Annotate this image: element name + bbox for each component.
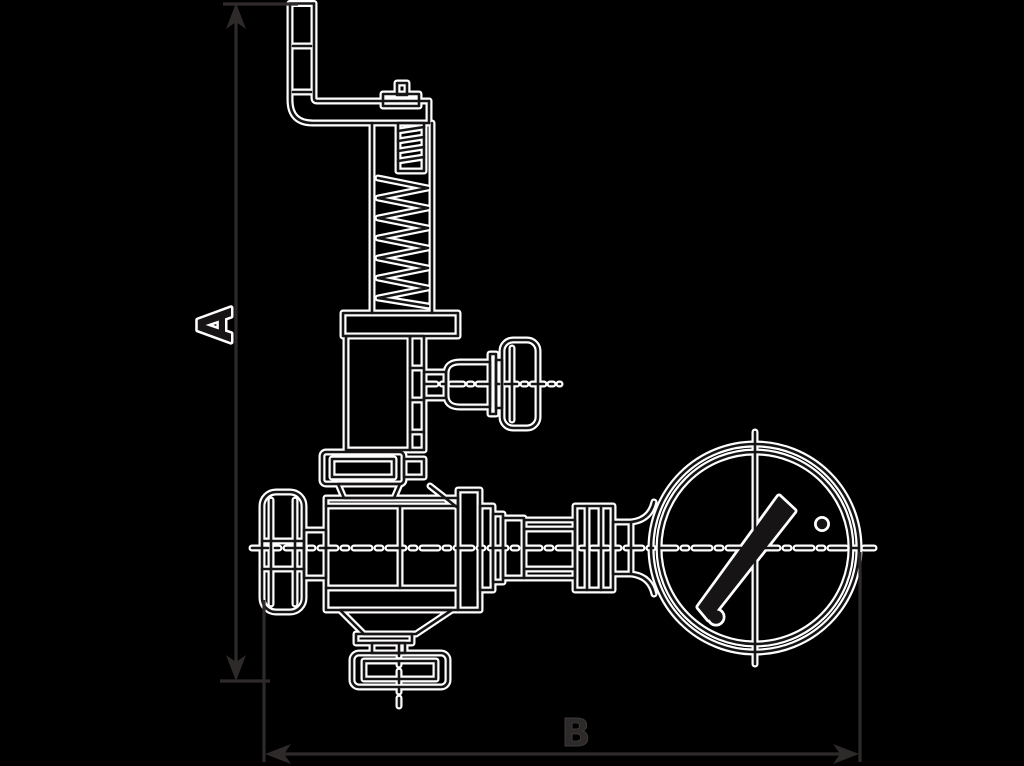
dimension-a-label-group: A A	[189, 307, 242, 342]
gauge-screw	[818, 520, 827, 529]
handwheel-stem	[304, 530, 326, 578]
screenshot-canvas: { "page": { "background": "#000000" }, "…	[0, 0, 1024, 766]
spring-housing	[346, 336, 410, 450]
valve-drawing-ink-pass	[252, 4, 874, 707]
spring-housing	[346, 336, 410, 450]
gauge-screw	[710, 611, 722, 623]
drawing-layers	[252, 4, 874, 707]
handwheel	[262, 492, 326, 612]
dimension-b-label: B	[562, 711, 591, 755]
drawing-stage: A A B	[0, 0, 1024, 766]
gauge-needle	[699, 497, 794, 619]
dimension-a-label: A	[189, 307, 242, 342]
valve-technical-drawing: A A B	[0, 0, 1024, 766]
